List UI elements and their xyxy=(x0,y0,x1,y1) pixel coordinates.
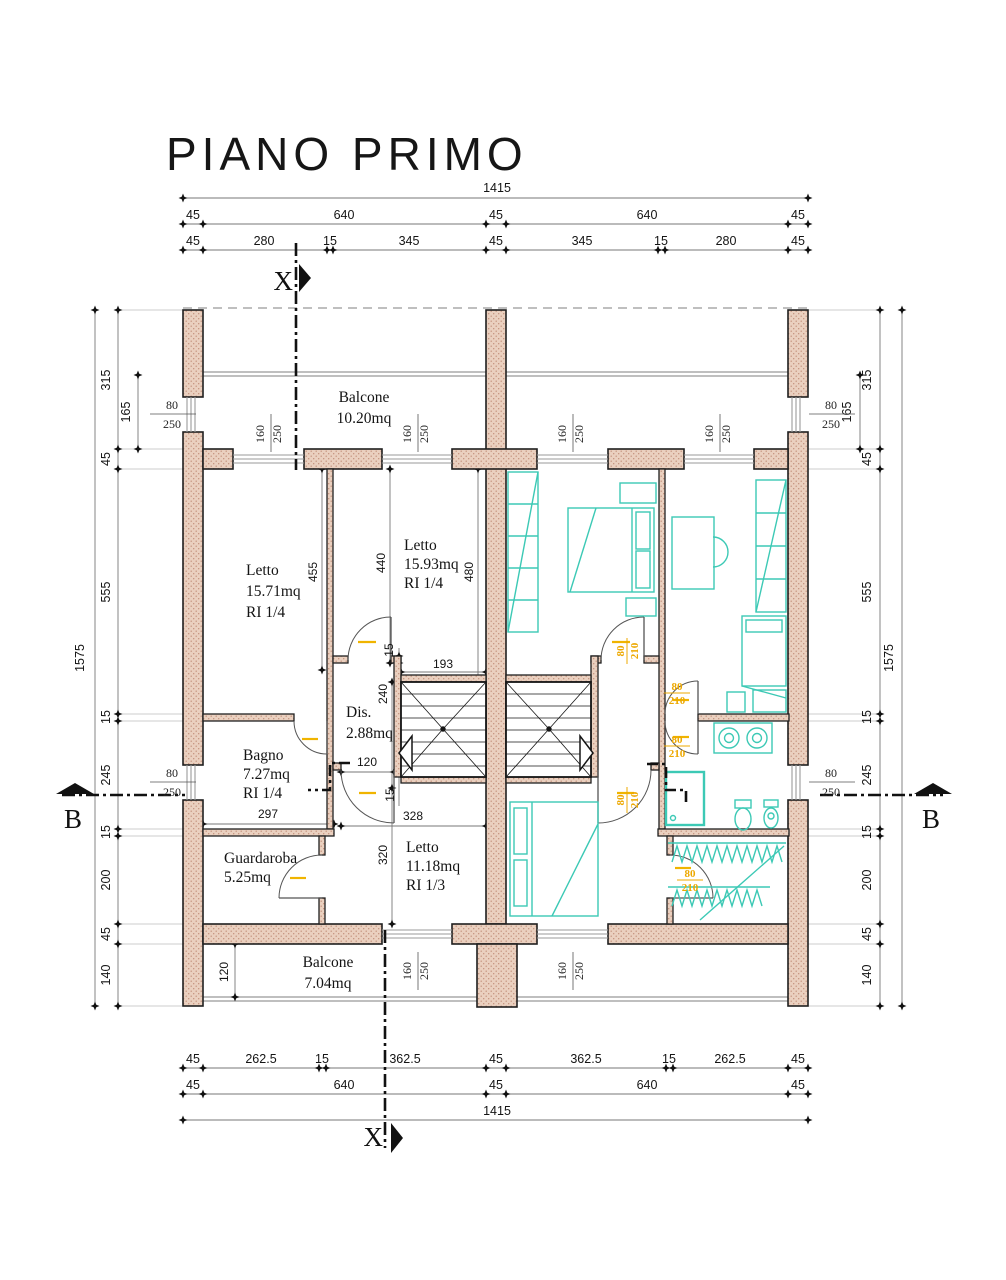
dim-label: 45 xyxy=(99,927,113,941)
dim-label: 140 xyxy=(99,965,113,986)
window-h: 250 xyxy=(270,425,284,443)
dim-label: 15 xyxy=(654,234,668,248)
dim-label: 193 xyxy=(433,657,453,671)
door-w: 80 xyxy=(615,645,627,657)
room-area: 5.25mq xyxy=(224,869,271,886)
room-label-balcone-bottom: Balcone 7.04mq xyxy=(303,954,354,992)
side-w: 80 xyxy=(166,766,178,780)
room-label-dis: Dis. 2.88mq xyxy=(346,704,393,742)
bathroom-fixtures xyxy=(666,723,778,830)
dim-label: 640 xyxy=(637,208,658,222)
room-area: 15.93mq xyxy=(404,556,459,573)
dim-label: 240 xyxy=(376,684,390,704)
side-h: 250 xyxy=(163,785,181,799)
dim-label: 15 xyxy=(323,234,337,248)
dim-label: 200 xyxy=(860,870,874,891)
top-dimension-row-3: 45 280 15 345 45 345 15 280 45 xyxy=(186,234,805,248)
bottom-dimension-row-total: 1415 xyxy=(483,1104,511,1118)
side-w: 80 xyxy=(825,398,837,412)
window-w: 160 xyxy=(702,425,716,443)
section-x-top-arrow xyxy=(299,264,311,292)
double-bed-1 xyxy=(568,508,654,592)
section-b-right-arrow xyxy=(914,783,952,794)
floor-plan-page: PIANO PRIMO X X B B 1415 45 640 45 640 4… xyxy=(0,0,1006,1280)
room-label-letto1: Letto 15.71mq RI 1/4 xyxy=(246,562,301,621)
dim-label: 15 xyxy=(383,788,397,802)
dim-label: 45 xyxy=(791,208,805,222)
room-ri: RI 1/4 xyxy=(404,575,443,592)
bottom-dimension-row-1: 45 262.5 15 362.5 45 362.5 15 262.5 45 xyxy=(186,1052,805,1066)
dim-label: 640 xyxy=(334,1078,355,1092)
dim-label: 165 xyxy=(840,402,854,423)
room-ri: RI 1/4 xyxy=(246,604,285,621)
side-w: 80 xyxy=(825,766,837,780)
desk-and-chair xyxy=(672,517,728,589)
dim-label: 45 xyxy=(99,452,113,466)
top-dimension-row-2: 45 640 45 640 45 xyxy=(186,208,805,222)
dim-label: 640 xyxy=(637,1078,658,1092)
dim-label: 45 xyxy=(489,234,503,248)
door-h: 210 xyxy=(629,642,641,659)
door-w: 80 xyxy=(615,794,627,806)
dim-label: 15 xyxy=(860,710,874,724)
walls xyxy=(183,310,808,1007)
single-bed xyxy=(727,616,786,712)
bottom-dimension-row-2: 45 640 45 640 45 xyxy=(186,1078,805,1092)
room-name: Letto xyxy=(246,562,279,579)
dim-label: 120 xyxy=(357,755,377,769)
dim-label: 45 xyxy=(489,1052,503,1066)
side-h: 250 xyxy=(822,785,840,799)
dim-label: 280 xyxy=(254,234,275,248)
dim-label: 555 xyxy=(99,582,113,603)
room-name: Balcone xyxy=(339,389,390,406)
dim-label: 45 xyxy=(860,452,874,466)
door-w: 80 xyxy=(672,681,684,693)
dim-label: 45 xyxy=(860,927,874,941)
dim-label: 120 xyxy=(217,962,231,982)
dim-label: 480 xyxy=(462,562,476,582)
dresser-1 xyxy=(620,483,656,503)
side-h: 250 xyxy=(163,417,181,431)
staircase-left xyxy=(399,682,486,777)
dim-label: 140 xyxy=(860,965,874,986)
section-b-left-label: B xyxy=(64,804,82,834)
room-name: Guardaroba xyxy=(224,850,297,867)
dim-label: 45 xyxy=(489,208,503,222)
dim-label: 1415 xyxy=(483,1104,511,1118)
room-area: 10.20mq xyxy=(337,410,392,427)
room-label-guardaroba: Guardaroba 5.25mq xyxy=(224,850,297,886)
room-name: Letto xyxy=(404,537,437,554)
dim-label: 15 xyxy=(662,1052,676,1066)
nightstand-1 xyxy=(626,598,656,616)
wardrobe-1 xyxy=(508,472,538,632)
dim-label: 15 xyxy=(315,1052,329,1066)
room-area: 7.04mq xyxy=(305,975,352,992)
dim-label: 45 xyxy=(791,1052,805,1066)
dim-label: 1415 xyxy=(483,181,511,195)
dim-label: 280 xyxy=(716,234,737,248)
window-w: 160 xyxy=(555,425,569,443)
door-h: 210 xyxy=(669,748,686,760)
side-w: 80 xyxy=(166,398,178,412)
page-title: PIANO PRIMO xyxy=(166,128,528,180)
dim-label: 45 xyxy=(186,1052,200,1066)
dim-label: 245 xyxy=(860,765,874,786)
room-name: Bagno xyxy=(243,747,284,764)
dim-label: 45 xyxy=(791,1078,805,1092)
room-ri: RI 1/3 xyxy=(406,877,445,894)
dim-label: 345 xyxy=(572,234,593,248)
window-h: 250 xyxy=(417,425,431,443)
window-w: 160 xyxy=(555,962,569,980)
dim-label: 297 xyxy=(258,807,278,821)
dim-label: 15 xyxy=(99,710,113,724)
dim-label: 245 xyxy=(99,765,113,786)
wardrobe-2 xyxy=(756,480,786,612)
room-name: Dis. xyxy=(346,704,371,721)
section-b-left-arrow xyxy=(56,783,94,794)
dim-label: 320 xyxy=(376,845,390,865)
window-h: 250 xyxy=(417,962,431,980)
room-area: 2.88mq xyxy=(346,725,393,742)
dim-label: 262.5 xyxy=(714,1052,745,1066)
dim-label: 455 xyxy=(306,562,320,582)
room-area: 15.71mq xyxy=(246,583,301,600)
dim-label: 200 xyxy=(99,870,113,891)
window-w: 160 xyxy=(253,425,267,443)
floor-plan-drawing: PIANO PRIMO X X B B 1415 45 640 45 640 4… xyxy=(0,0,1006,1280)
window-w: 160 xyxy=(400,962,414,980)
right-dimension-chain: 1575 315 45 555 15 245 15 200 45 140 165 xyxy=(840,370,896,986)
dim-label: 15 xyxy=(382,643,396,657)
window-w: 160 xyxy=(400,425,414,443)
dim-label: 45 xyxy=(791,234,805,248)
dim-label: 440 xyxy=(374,553,388,573)
dim-label: 315 xyxy=(860,370,874,391)
dim-label: 165 xyxy=(119,402,133,423)
side-h: 250 xyxy=(822,417,840,431)
dim-label: 315 xyxy=(99,370,113,391)
door-w: 80 xyxy=(672,734,684,746)
room-label-letto2: Letto 15.93mq RI 1/4 xyxy=(404,537,459,592)
room-label-balcone-top: Balcone 10.20mq xyxy=(337,389,392,427)
dim-label: 45 xyxy=(489,1078,503,1092)
dim-label: 555 xyxy=(860,582,874,603)
top-dimension-row-total: 1415 xyxy=(483,181,511,195)
section-x-bottom-arrow xyxy=(391,1123,403,1153)
section-b-right-label: B xyxy=(922,804,940,834)
staircase-right xyxy=(506,682,593,777)
room-label-letto3: Letto 11.18mq RI 1/3 xyxy=(406,839,460,894)
dim-label: 1575 xyxy=(73,644,87,672)
dim-label: 15 xyxy=(99,825,113,839)
left-dimension-chain: 1575 315 45 555 15 245 15 200 45 140 165 xyxy=(73,370,133,986)
room-ri: RI 1/4 xyxy=(243,785,282,802)
window-h: 250 xyxy=(719,425,733,443)
door-h: 210 xyxy=(629,791,641,808)
window-h: 250 xyxy=(572,962,586,980)
door-h: 210 xyxy=(669,695,686,707)
room-area: 11.18mq xyxy=(406,858,460,875)
room-name: Letto xyxy=(406,839,439,856)
door-h: 210 xyxy=(682,882,699,894)
dim-label: 328 xyxy=(403,809,423,823)
dim-label: 45 xyxy=(186,1078,200,1092)
double-bed-2 xyxy=(510,802,598,916)
dim-label: 362.5 xyxy=(389,1052,420,1066)
dim-label: 15 xyxy=(860,825,874,839)
dim-label: 640 xyxy=(334,208,355,222)
section-x-bottom-label: X xyxy=(364,1122,384,1152)
dim-label: 45 xyxy=(186,234,200,248)
room-name: Balcone xyxy=(303,954,354,971)
dim-label: 1575 xyxy=(882,644,896,672)
dim-label: 262.5 xyxy=(245,1052,276,1066)
room-area: 7.27mq xyxy=(243,766,290,783)
dim-label: 45 xyxy=(186,208,200,222)
section-x-top-label: X xyxy=(274,266,294,296)
window-h: 250 xyxy=(572,425,586,443)
room-label-bagno: Bagno 7.27mq RI 1/4 xyxy=(243,747,290,802)
dim-label: 362.5 xyxy=(570,1052,601,1066)
door-w: 80 xyxy=(685,868,697,880)
dim-label: 345 xyxy=(399,234,420,248)
